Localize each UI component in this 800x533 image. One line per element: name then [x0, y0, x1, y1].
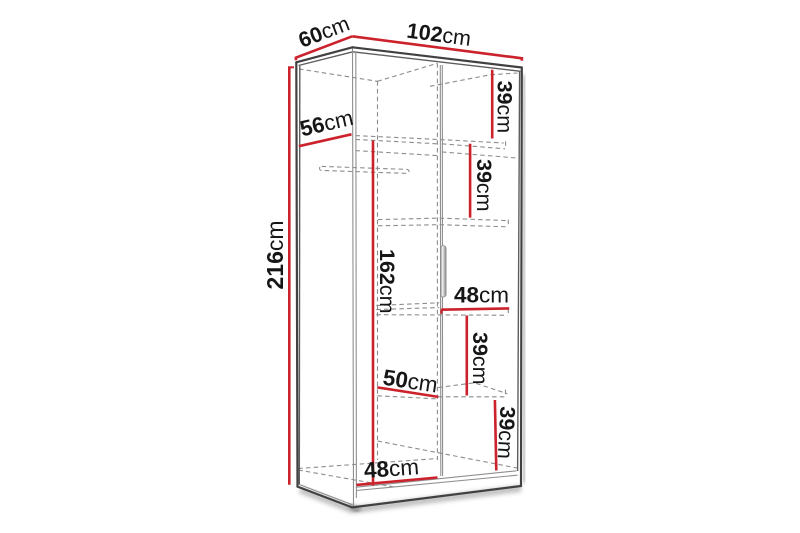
- svg-text:39cm: 39cm: [468, 332, 492, 385]
- svg-text:48cm: 48cm: [363, 454, 420, 483]
- svg-text:39cm: 39cm: [493, 406, 520, 460]
- svg-text:39cm: 39cm: [472, 159, 496, 212]
- svg-text:39cm: 39cm: [493, 81, 517, 134]
- svg-text:48cm: 48cm: [454, 282, 509, 307]
- svg-text:216cm: 216cm: [262, 220, 288, 289]
- svg-text:162cm: 162cm: [375, 249, 399, 314]
